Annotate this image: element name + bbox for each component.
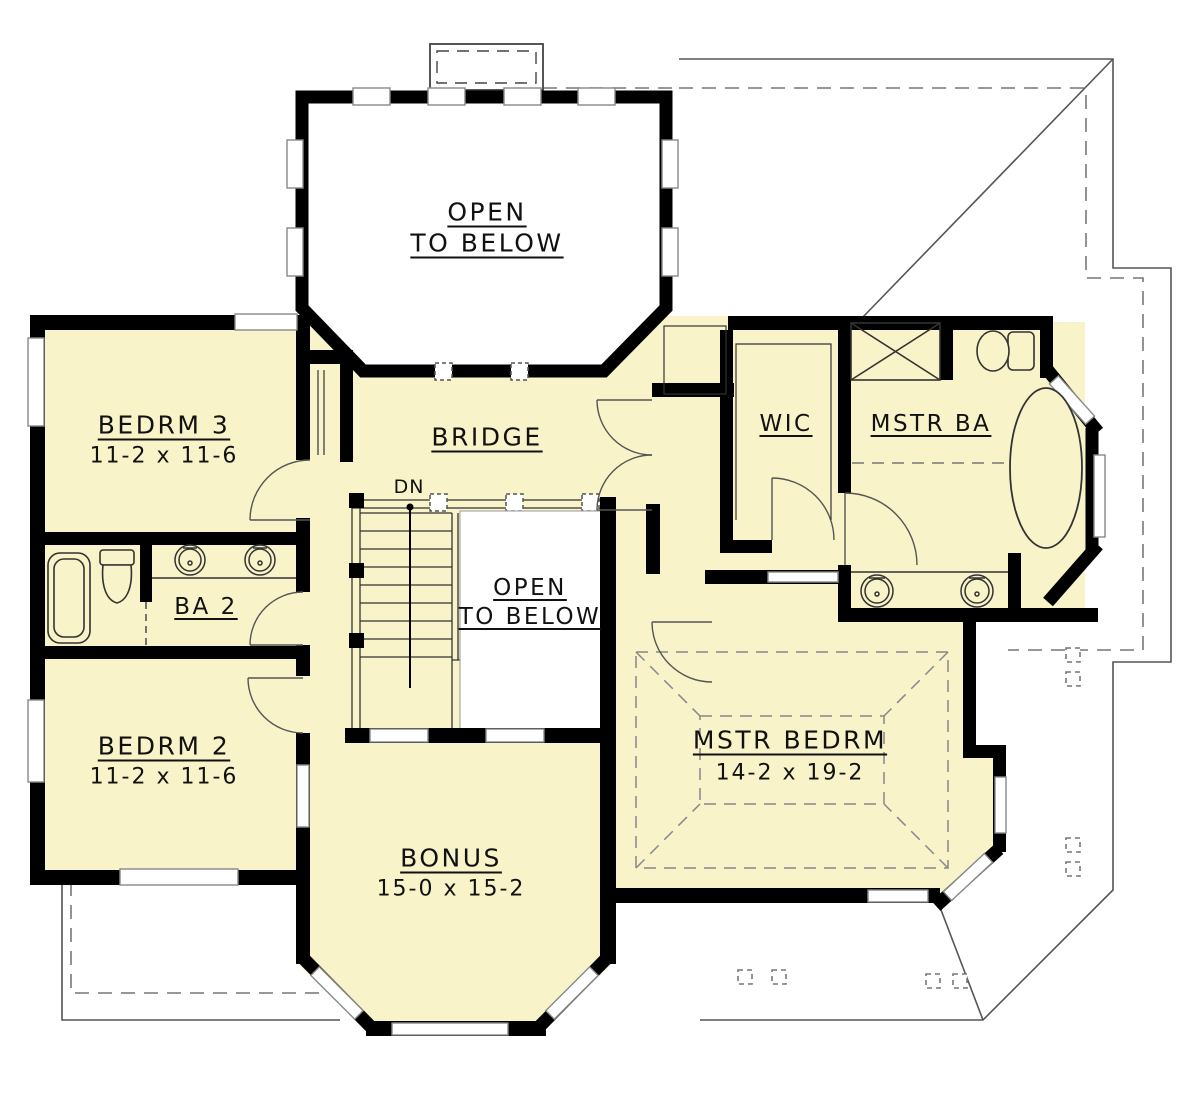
mstr-ba-name: MSTR BA — [871, 411, 992, 437]
open-below-center-line1: OPEN — [493, 575, 567, 601]
open-below-center-line2: TO BELOW — [459, 604, 602, 630]
ba2-divider-wall — [140, 532, 152, 602]
bedrm2-dims: 11-2 x 11-6 — [90, 765, 239, 790]
bridge-name: BRIDGE — [431, 423, 542, 452]
chimney — [430, 44, 543, 90]
ba2-name: BA 2 — [174, 594, 237, 620]
open-below-top-line1: OPEN — [447, 198, 526, 227]
bedrm3-dims: 11-2 x 11-6 — [90, 444, 239, 469]
oval-tub — [1010, 388, 1082, 548]
floor-plan: OPEN TO BELOW BEDRM 3 11-2 x 11-6 BRIDGE… — [0, 0, 1200, 1096]
bonus-name: BONUS — [400, 844, 502, 873]
bonus-dims: 15-0 x 15-2 — [377, 877, 526, 902]
wic-name: WIC — [759, 411, 812, 437]
open-below-top-line2: TO BELOW — [410, 229, 563, 258]
mstr-bedrm-dims: 14-2 x 19-2 — [716, 761, 865, 786]
mstr-bedrm-name: MSTR BEDRM — [693, 726, 887, 755]
stairs-dn-label: DN — [394, 476, 425, 498]
floor-plan-drawing — [0, 0, 1200, 1096]
bedrm3-name: BEDRM 3 — [98, 411, 231, 440]
bedrm2-name: BEDRM 2 — [98, 732, 231, 761]
